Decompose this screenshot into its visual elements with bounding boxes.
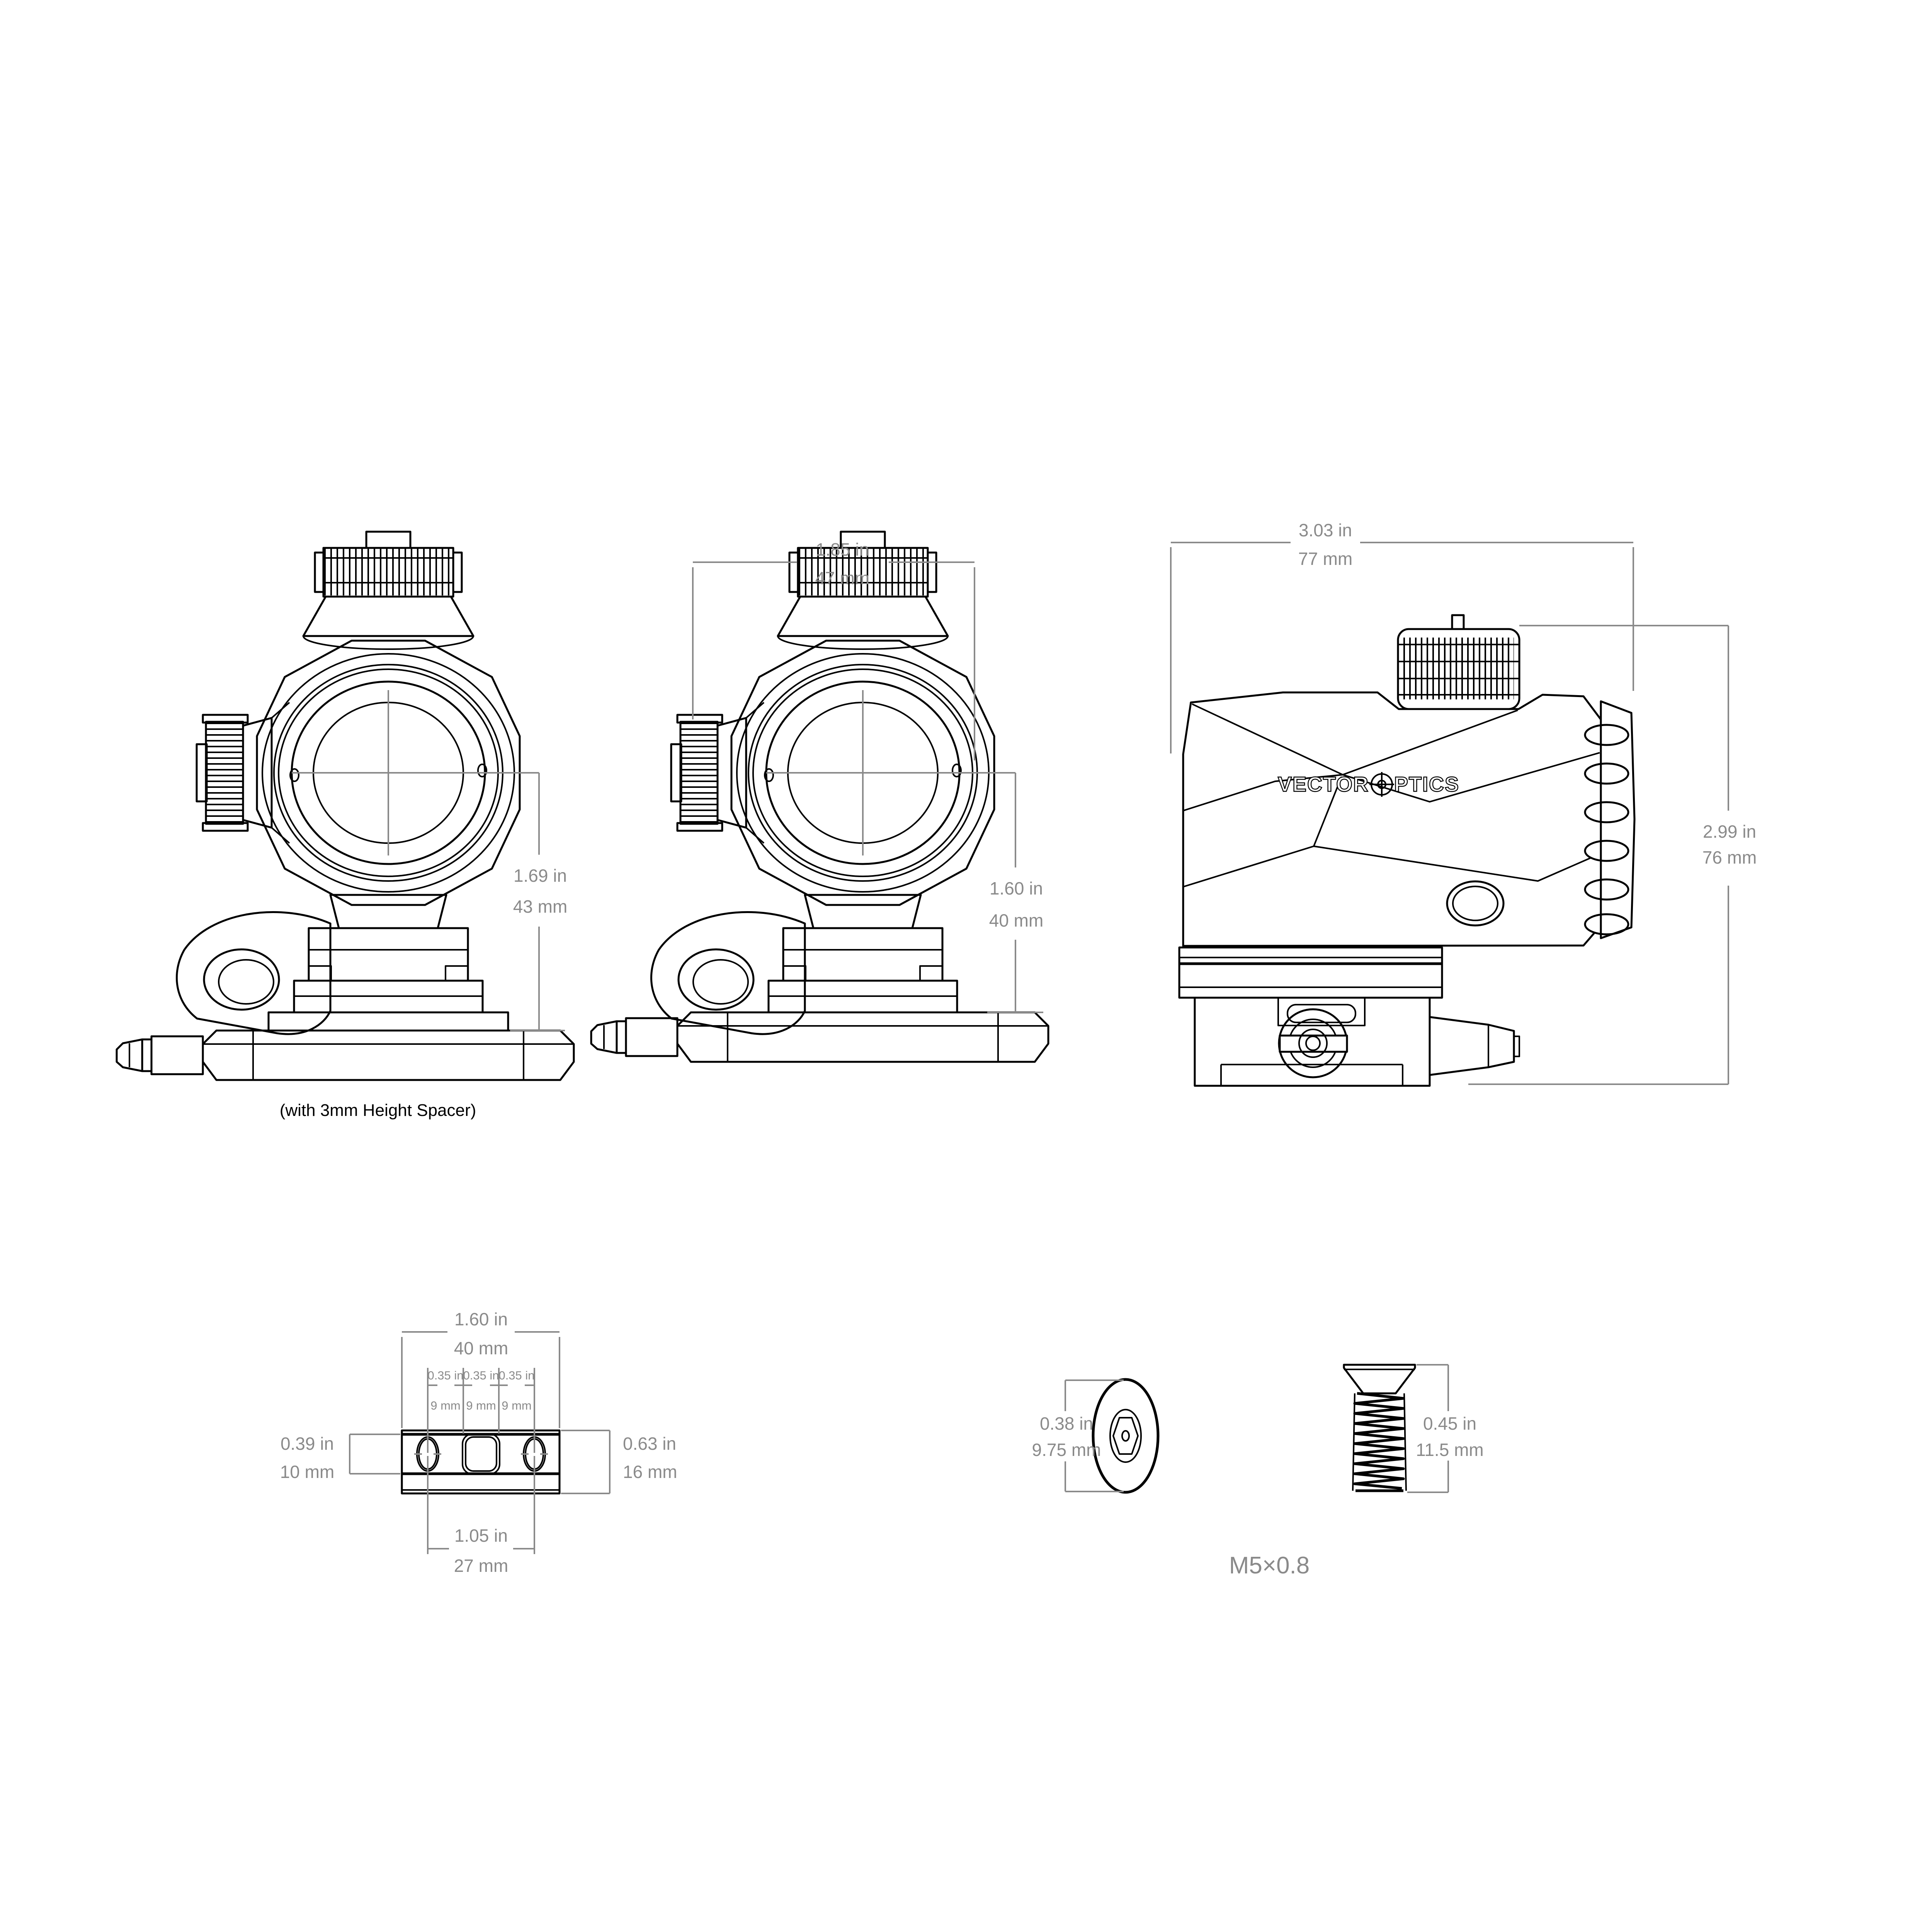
technical-drawing-page: 1.69 in 43 mm (with 3mm Height Spacer) 1… <box>0 0 1932 1932</box>
brand-word1: VECTOR <box>1278 773 1369 796</box>
rail-bottom-view: 1.60 in 40 mm 0.35 in 9 mm 0.35 in 9 mm … <box>280 1309 677 1576</box>
dim-front-height-spacer-mm: 43 mm <box>513 896 568 917</box>
eyepiece <box>1585 701 1634 938</box>
front-view: 1.85 in 47 mm 1.60 in 40 mm <box>591 532 1048 1062</box>
dim-screw-length-mm: 11.5 mm <box>1416 1440 1484 1460</box>
dim-rail-pitch2-in: 0.35 in <box>463 1369 499 1382</box>
qd-wheel <box>1279 1009 1347 1077</box>
side-view: VECTOR PTICS <box>1171 520 1757 1086</box>
dim-rail-hole-span-mm: 27 mm <box>454 1556 509 1576</box>
dim-front-height-mm: 40 mm <box>989 910 1044 930</box>
dim-rail-width-in: 1.60 in <box>454 1309 508 1329</box>
dimensional-drawing: 1.69 in 43 mm (with 3mm Height Spacer) 1… <box>0 0 1932 1932</box>
reticle-o-icon <box>1369 772 1394 797</box>
dim-screw-head-diameter-mm: 9.75 mm <box>1032 1440 1101 1460</box>
dim-screw-length-in: 0.45 in <box>1423 1413 1476 1434</box>
dimension-screw-length: 0.45 in 11.5 mm <box>1407 1365 1484 1492</box>
height-spacer <box>269 1012 508 1031</box>
dim-rail-outer-height-in: 0.63 in <box>623 1434 676 1454</box>
dim-side-height-mm: 76 mm <box>1702 847 1757 867</box>
dim-rail-pitch1-in: 0.35 in <box>427 1369 463 1382</box>
dim-screw-head-diameter-in: 0.38 in <box>1040 1413 1093 1434</box>
dim-side-width-in: 3.03 in <box>1299 520 1352 540</box>
dim-front-width-in: 1.85 in <box>816 539 869 560</box>
dim-side-height-in: 2.99 in <box>1703 821 1756 842</box>
dimension-front-height: 1.60 in 40 mm <box>987 773 1043 1012</box>
screw-head-top-view: 0.38 in 9.75 mm <box>1032 1379 1158 1492</box>
dim-rail-inner-height-mm: 10 mm <box>280 1462 335 1482</box>
brand-word2: PTICS <box>1394 773 1459 796</box>
dimension-rail-inner-height: 0.39 in 10 mm <box>280 1434 400 1482</box>
dim-front-height-spacer-in: 1.69 in <box>514 866 567 886</box>
dim-rail-pitch1-mm: 9 mm <box>430 1399 461 1412</box>
dim-front-height-in: 1.60 in <box>990 878 1043 898</box>
dim-rail-pitch3-in: 0.35 in <box>498 1369 534 1382</box>
brand-logo: VECTOR PTICS <box>1278 772 1459 797</box>
front-view-with-spacer: 1.69 in 43 mm (with 3mm Height Spacer) <box>117 532 574 1120</box>
dimension-side-width: 3.03 in 77 mm <box>1171 520 1633 753</box>
dimension-rail-outer-height: 0.63 in 16 mm <box>561 1430 677 1493</box>
spacer-caption: (with 3mm Height Spacer) <box>280 1101 476 1120</box>
dim-rail-width-mm: 40 mm <box>454 1338 509 1358</box>
dim-rail-pitch3-mm: 9 mm <box>502 1399 532 1412</box>
thread-spec-label: M5×0.8 <box>1229 1552 1310 1579</box>
dimension-rail-pitches: 0.35 in 9 mm 0.35 in 9 mm 0.35 in 9 mm <box>427 1368 534 1453</box>
dim-rail-inner-height-in: 0.39 in <box>281 1434 334 1454</box>
screw-side-view: 0.45 in 11.5 mm <box>1344 1365 1484 1492</box>
dim-front-width-mm: 47 mm <box>815 568 870 588</box>
thumb-nut <box>1430 1017 1519 1075</box>
dim-rail-outer-height-mm: 16 mm <box>623 1462 677 1482</box>
dim-rail-hole-span-in: 1.05 in <box>454 1526 508 1546</box>
dim-side-width-mm: 77 mm <box>1298 549 1353 569</box>
dim-rail-pitch2-mm: 9 mm <box>466 1399 496 1412</box>
